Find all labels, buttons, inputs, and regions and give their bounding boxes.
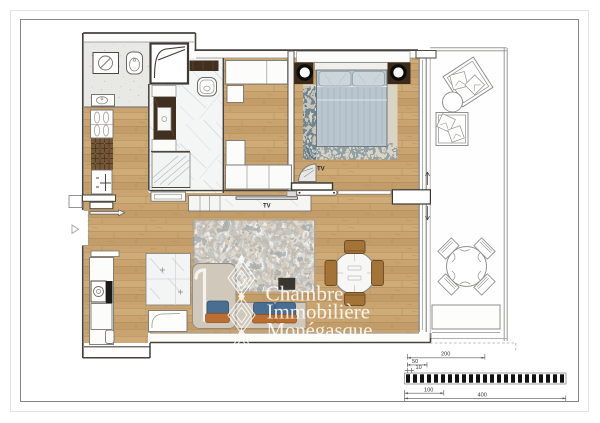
svg-text:200: 200 xyxy=(441,352,450,358)
svg-text:TV: TV xyxy=(263,204,271,210)
svg-text:400: 400 xyxy=(478,393,487,399)
svg-text:10: 10 xyxy=(416,365,422,371)
svg-text:TV: TV xyxy=(317,167,325,173)
svg-text:100: 100 xyxy=(424,387,433,393)
svg-text:Monégasque: Monégasque xyxy=(267,318,373,342)
